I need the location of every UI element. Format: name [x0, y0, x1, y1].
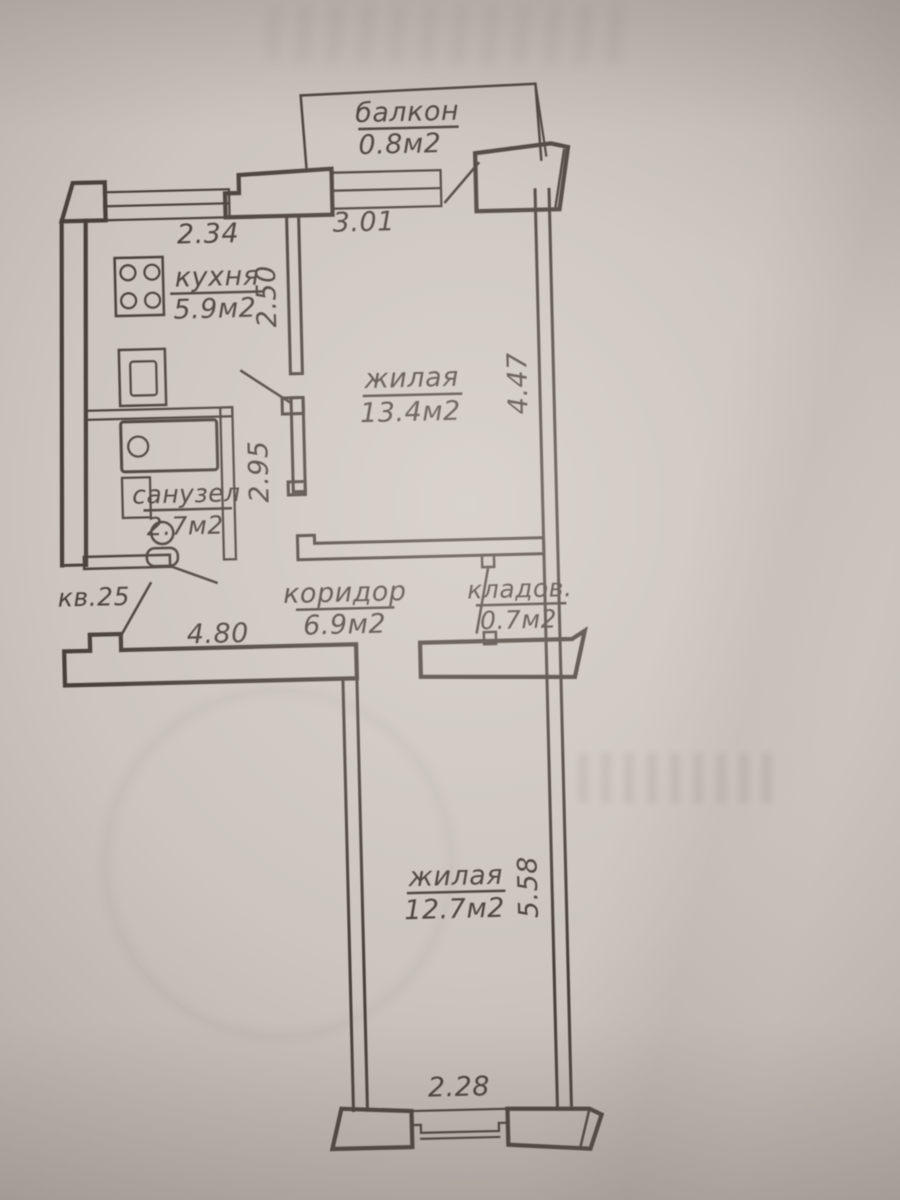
- wall-right-inner: [535, 190, 557, 1106]
- storage-label: кладов.: [467, 573, 573, 605]
- corridor-area: 6.9м2: [303, 609, 387, 642]
- floor-plan-drawing: балкон 0.8м2 кухня 5.9м2 жилая 13.4м2 са…: [0, 0, 900, 1200]
- storage-area: 0.7м2: [480, 604, 558, 635]
- stove-symbol: [115, 257, 164, 316]
- living2-window: [411, 1109, 508, 1133]
- living2-wall-left-b: [357, 678, 368, 1110]
- bathroom-area: 2.7м2: [146, 511, 224, 542]
- living2-wall-left-a: [343, 679, 354, 1111]
- wall-top-left-head: [61, 182, 106, 221]
- dim-living-depth: 4.47: [502, 352, 535, 415]
- dim-partition: 2.95: [243, 440, 276, 503]
- dim-kitchen-depth: 2.50: [251, 265, 284, 328]
- living1-bottom-wall: [297, 530, 544, 560]
- bathroom-door-leaf: [172, 566, 216, 584]
- living2-area: 12.7м2: [404, 893, 505, 926]
- bottom-wall-left-block: [331, 1107, 412, 1149]
- bathtub-symbol: [121, 420, 218, 472]
- dim-living2-window: 2.28: [428, 1071, 491, 1104]
- balcony-label: балкон: [355, 96, 460, 130]
- living1-label: жилая: [363, 362, 459, 395]
- dim-corridor: 4.80: [186, 618, 249, 651]
- dim-kitchen-window: 2.34: [177, 218, 240, 251]
- kitchen-label: кухня: [174, 261, 259, 294]
- living2-window-sill: [421, 1137, 499, 1139]
- bathroom-label: санузел: [132, 478, 241, 510]
- storage-doorstop-top: [482, 555, 494, 567]
- apartment-number-label: кв.25: [57, 582, 130, 613]
- wall-top-pier: [224, 169, 332, 218]
- partition-lower: [291, 398, 305, 492]
- wall-right-outer: [549, 189, 571, 1105]
- bottom-wall-right-hatch: [579, 1109, 590, 1147]
- dim-living2-depth: 5.58: [512, 856, 545, 919]
- wall-left-inner: [78, 221, 94, 565]
- kitchen-window-inner: [104, 203, 229, 206]
- partition-upper: [287, 216, 303, 374]
- dim-living-window: 3.01: [332, 206, 395, 239]
- living2-label: жилая: [407, 860, 503, 893]
- balcony-area: 0.8м2: [358, 128, 442, 161]
- living1-area: 13.4м2: [360, 396, 461, 429]
- wall-left-outer: [54, 221, 70, 565]
- wall-left-endcap: [62, 565, 86, 566]
- scanned-floor-plan-photo: балкон 0.8м2 кухня 5.9м2 жилая 13.4м2 са…: [0, 0, 900, 1200]
- bathroom-wall-top: [86, 407, 232, 420]
- sink-symbol: [119, 349, 166, 406]
- living1-window-inner: [332, 188, 441, 191]
- corridor-label: коридор: [283, 576, 407, 610]
- kitchen-area: 5.9м2: [173, 293, 257, 326]
